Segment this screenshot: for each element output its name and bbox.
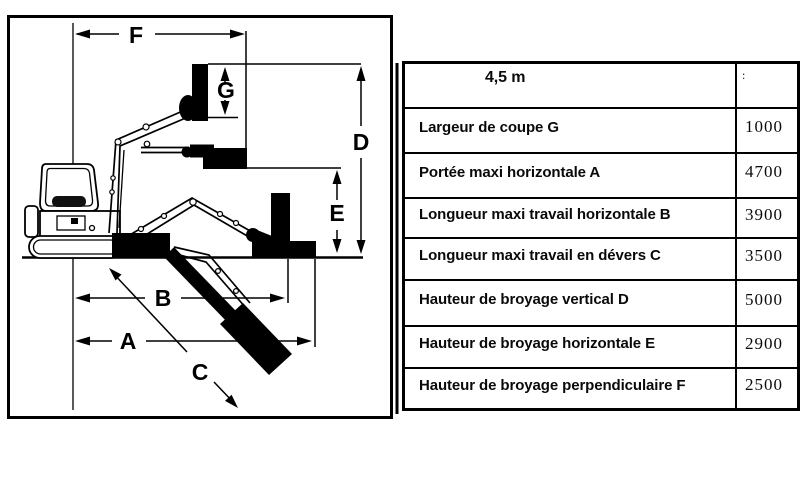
rear-attachment xyxy=(25,206,38,237)
dimension-c-label: C xyxy=(192,359,209,385)
spec-value: 4700 xyxy=(736,153,799,198)
dimension-a-label: A xyxy=(120,328,137,354)
table-row: Portée maxi horizontale A 4700 xyxy=(404,153,799,198)
table-row: Longueur maxi travail horizontale B 3900 xyxy=(404,198,799,238)
spec-label: Portée maxi horizontale A xyxy=(404,153,736,198)
dimension-b-label: B xyxy=(155,285,172,311)
boom-base-block xyxy=(112,233,170,258)
flail-head-perpendicular xyxy=(141,141,247,169)
spec-value: 1000 xyxy=(736,108,799,153)
spec-label: Hauteur de broyage vertical D xyxy=(404,280,736,326)
table-header-span: 4,5 m xyxy=(404,63,736,108)
table-row: Hauteur de broyage perpendiculaire F 250… xyxy=(404,368,799,410)
spec-value: 5000 xyxy=(736,280,799,326)
dimension-d-label: D xyxy=(353,129,370,155)
table-row: Hauteur de broyage horizontale E 2900 xyxy=(404,326,799,368)
spec-value: 2900 xyxy=(736,326,799,368)
spec-label: Hauteur de broyage perpendiculaire F xyxy=(404,368,736,410)
spec-label: Hauteur de broyage horizontale E xyxy=(404,326,736,368)
spec-label: Longueur maxi travail horizontale B xyxy=(404,198,736,238)
table-row: Longueur maxi travail en dévers C 3500 xyxy=(404,238,799,280)
dimension-g-label: G xyxy=(217,77,235,103)
spec-value: 3900 xyxy=(736,198,799,238)
excavator-spec-sheet: F G D E xyxy=(0,0,800,485)
track xyxy=(29,236,122,258)
spec-value: 2500 xyxy=(736,368,799,410)
hatch-latch xyxy=(71,218,78,224)
dimension-f-label: F xyxy=(129,22,143,48)
flail-head-vertical xyxy=(179,64,208,121)
table-row: Hauteur de broyage vertical D 5000 xyxy=(404,280,799,326)
dimension-e-label: E xyxy=(329,200,344,226)
table-row: Largeur de coupe G 1000 xyxy=(404,108,799,153)
spec-label: Largeur de coupe G xyxy=(404,108,736,153)
seat xyxy=(52,196,86,207)
table-header-unit: : xyxy=(736,63,799,108)
body-deck xyxy=(40,211,120,237)
excavator xyxy=(25,164,170,258)
dimension-g: G xyxy=(208,67,238,118)
spec-label: Longueur maxi travail en dévers C xyxy=(404,238,736,280)
spec-table: 4,5 m : Largeur de coupe G 1000 Portée m… xyxy=(402,61,800,411)
dimensions-diagram: F G D E xyxy=(0,0,400,485)
table-header-row: 4,5 m : xyxy=(404,63,799,108)
spec-value: 3500 xyxy=(736,238,799,280)
flail-head-horizontal xyxy=(252,193,316,258)
